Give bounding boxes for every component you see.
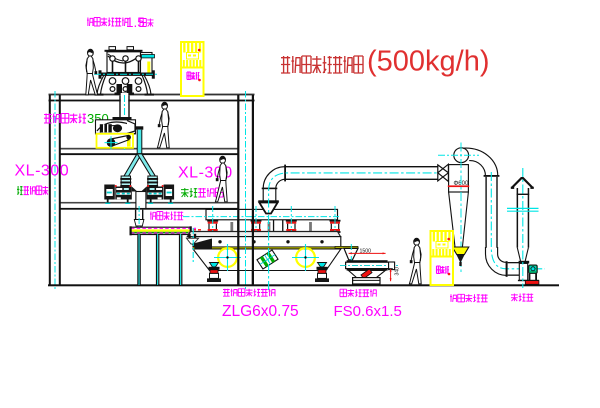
svg-text:(500kg/h): (500kg/h) xyxy=(367,46,490,78)
svg-text:ZLG6x0.75: ZLG6x0.75 xyxy=(222,303,299,320)
svg-text:XL-300: XL-300 xyxy=(15,163,70,180)
svg-text:1500: 1500 xyxy=(360,248,372,254)
svg-text:FS0.6x1.5: FS0.6x1.5 xyxy=(334,303,402,320)
svg-text:340: 340 xyxy=(395,267,401,276)
